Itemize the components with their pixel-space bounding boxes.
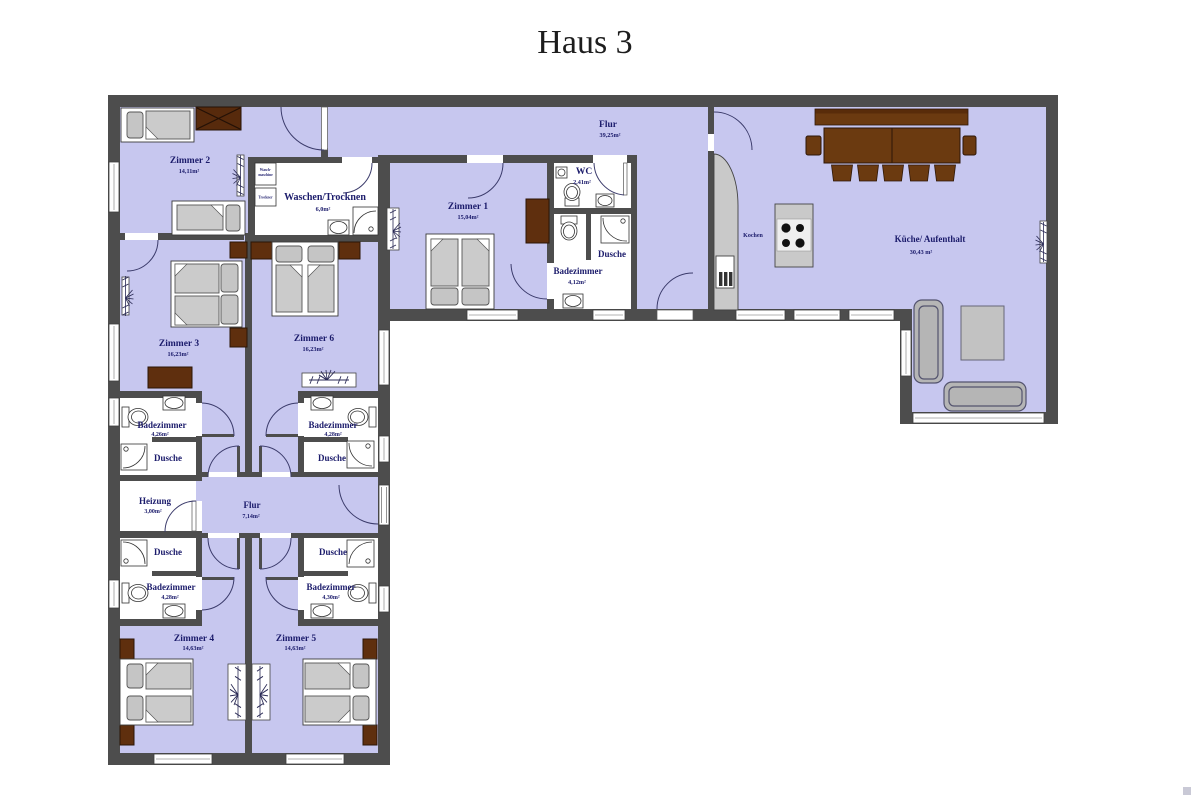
svg-text:Zimmer 6: Zimmer 6 — [294, 334, 334, 344]
svg-text:Badezimmer: Badezimmer — [138, 420, 187, 430]
svg-text:Zimmer 1: Zimmer 1 — [448, 202, 488, 212]
svg-text:Dusche: Dusche — [154, 547, 182, 557]
svg-text:3,00m²: 3,00m² — [144, 509, 161, 515]
svg-text:16,23m²: 16,23m² — [303, 346, 324, 353]
svg-text:14,11m²: 14,11m² — [179, 168, 200, 175]
svg-text:Badezimmer: Badezimmer — [147, 582, 196, 592]
svg-text:Wasch-: Wasch- — [260, 168, 272, 172]
svg-text:Dusche: Dusche — [319, 547, 347, 557]
svg-text:Dusche: Dusche — [154, 453, 182, 463]
svg-text:Küche/ Aufenthalt: Küche/ Aufenthalt — [895, 234, 966, 244]
svg-text:Badezimmer: Badezimmer — [309, 420, 358, 430]
svg-text:4,28m²: 4,28m² — [161, 595, 178, 601]
svg-text:Kochen: Kochen — [743, 233, 763, 239]
svg-text:Heizung: Heizung — [139, 496, 172, 506]
svg-text:Badezimmer: Badezimmer — [554, 266, 603, 276]
svg-text:2,41m²: 2,41m² — [573, 179, 591, 186]
svg-text:Flur: Flur — [599, 120, 618, 130]
svg-text:4,28m²: 4,28m² — [324, 432, 341, 438]
svg-text:14,63m²: 14,63m² — [183, 645, 204, 652]
svg-text:Dusche: Dusche — [318, 453, 346, 463]
svg-text:6,0m²: 6,0m² — [316, 206, 331, 213]
svg-text:Zimmer 5: Zimmer 5 — [276, 634, 316, 644]
svg-text:4,30m²: 4,30m² — [322, 595, 339, 601]
svg-text:Waschen/Trocknen: Waschen/Trocknen — [284, 192, 366, 203]
svg-text:Dusche: Dusche — [598, 249, 626, 259]
svg-text:4,12m²: 4,12m² — [568, 279, 586, 286]
svg-text:16,23m²: 16,23m² — [168, 351, 189, 358]
svg-text:7,14m²: 7,14m² — [242, 514, 259, 520]
svg-text:14,63m²: 14,63m² — [285, 645, 306, 652]
svg-text:15,04m²: 15,04m² — [458, 214, 479, 221]
svg-text:Zimmer 3: Zimmer 3 — [159, 339, 199, 349]
svg-text:maschine: maschine — [258, 173, 273, 177]
svg-text:Zimmer 2: Zimmer 2 — [170, 156, 210, 166]
svg-text:30,43 m²: 30,43 m² — [910, 249, 933, 256]
svg-text:4,26m²: 4,26m² — [151, 432, 168, 438]
svg-text:Trockner: Trockner — [258, 196, 273, 200]
svg-text:Zimmer 4: Zimmer 4 — [174, 634, 214, 644]
svg-text:39,25m²: 39,25m² — [600, 132, 621, 139]
svg-text:WC: WC — [576, 167, 593, 177]
svg-text:Flur: Flur — [244, 500, 261, 510]
svg-text:Badezimmer: Badezimmer — [307, 582, 356, 592]
